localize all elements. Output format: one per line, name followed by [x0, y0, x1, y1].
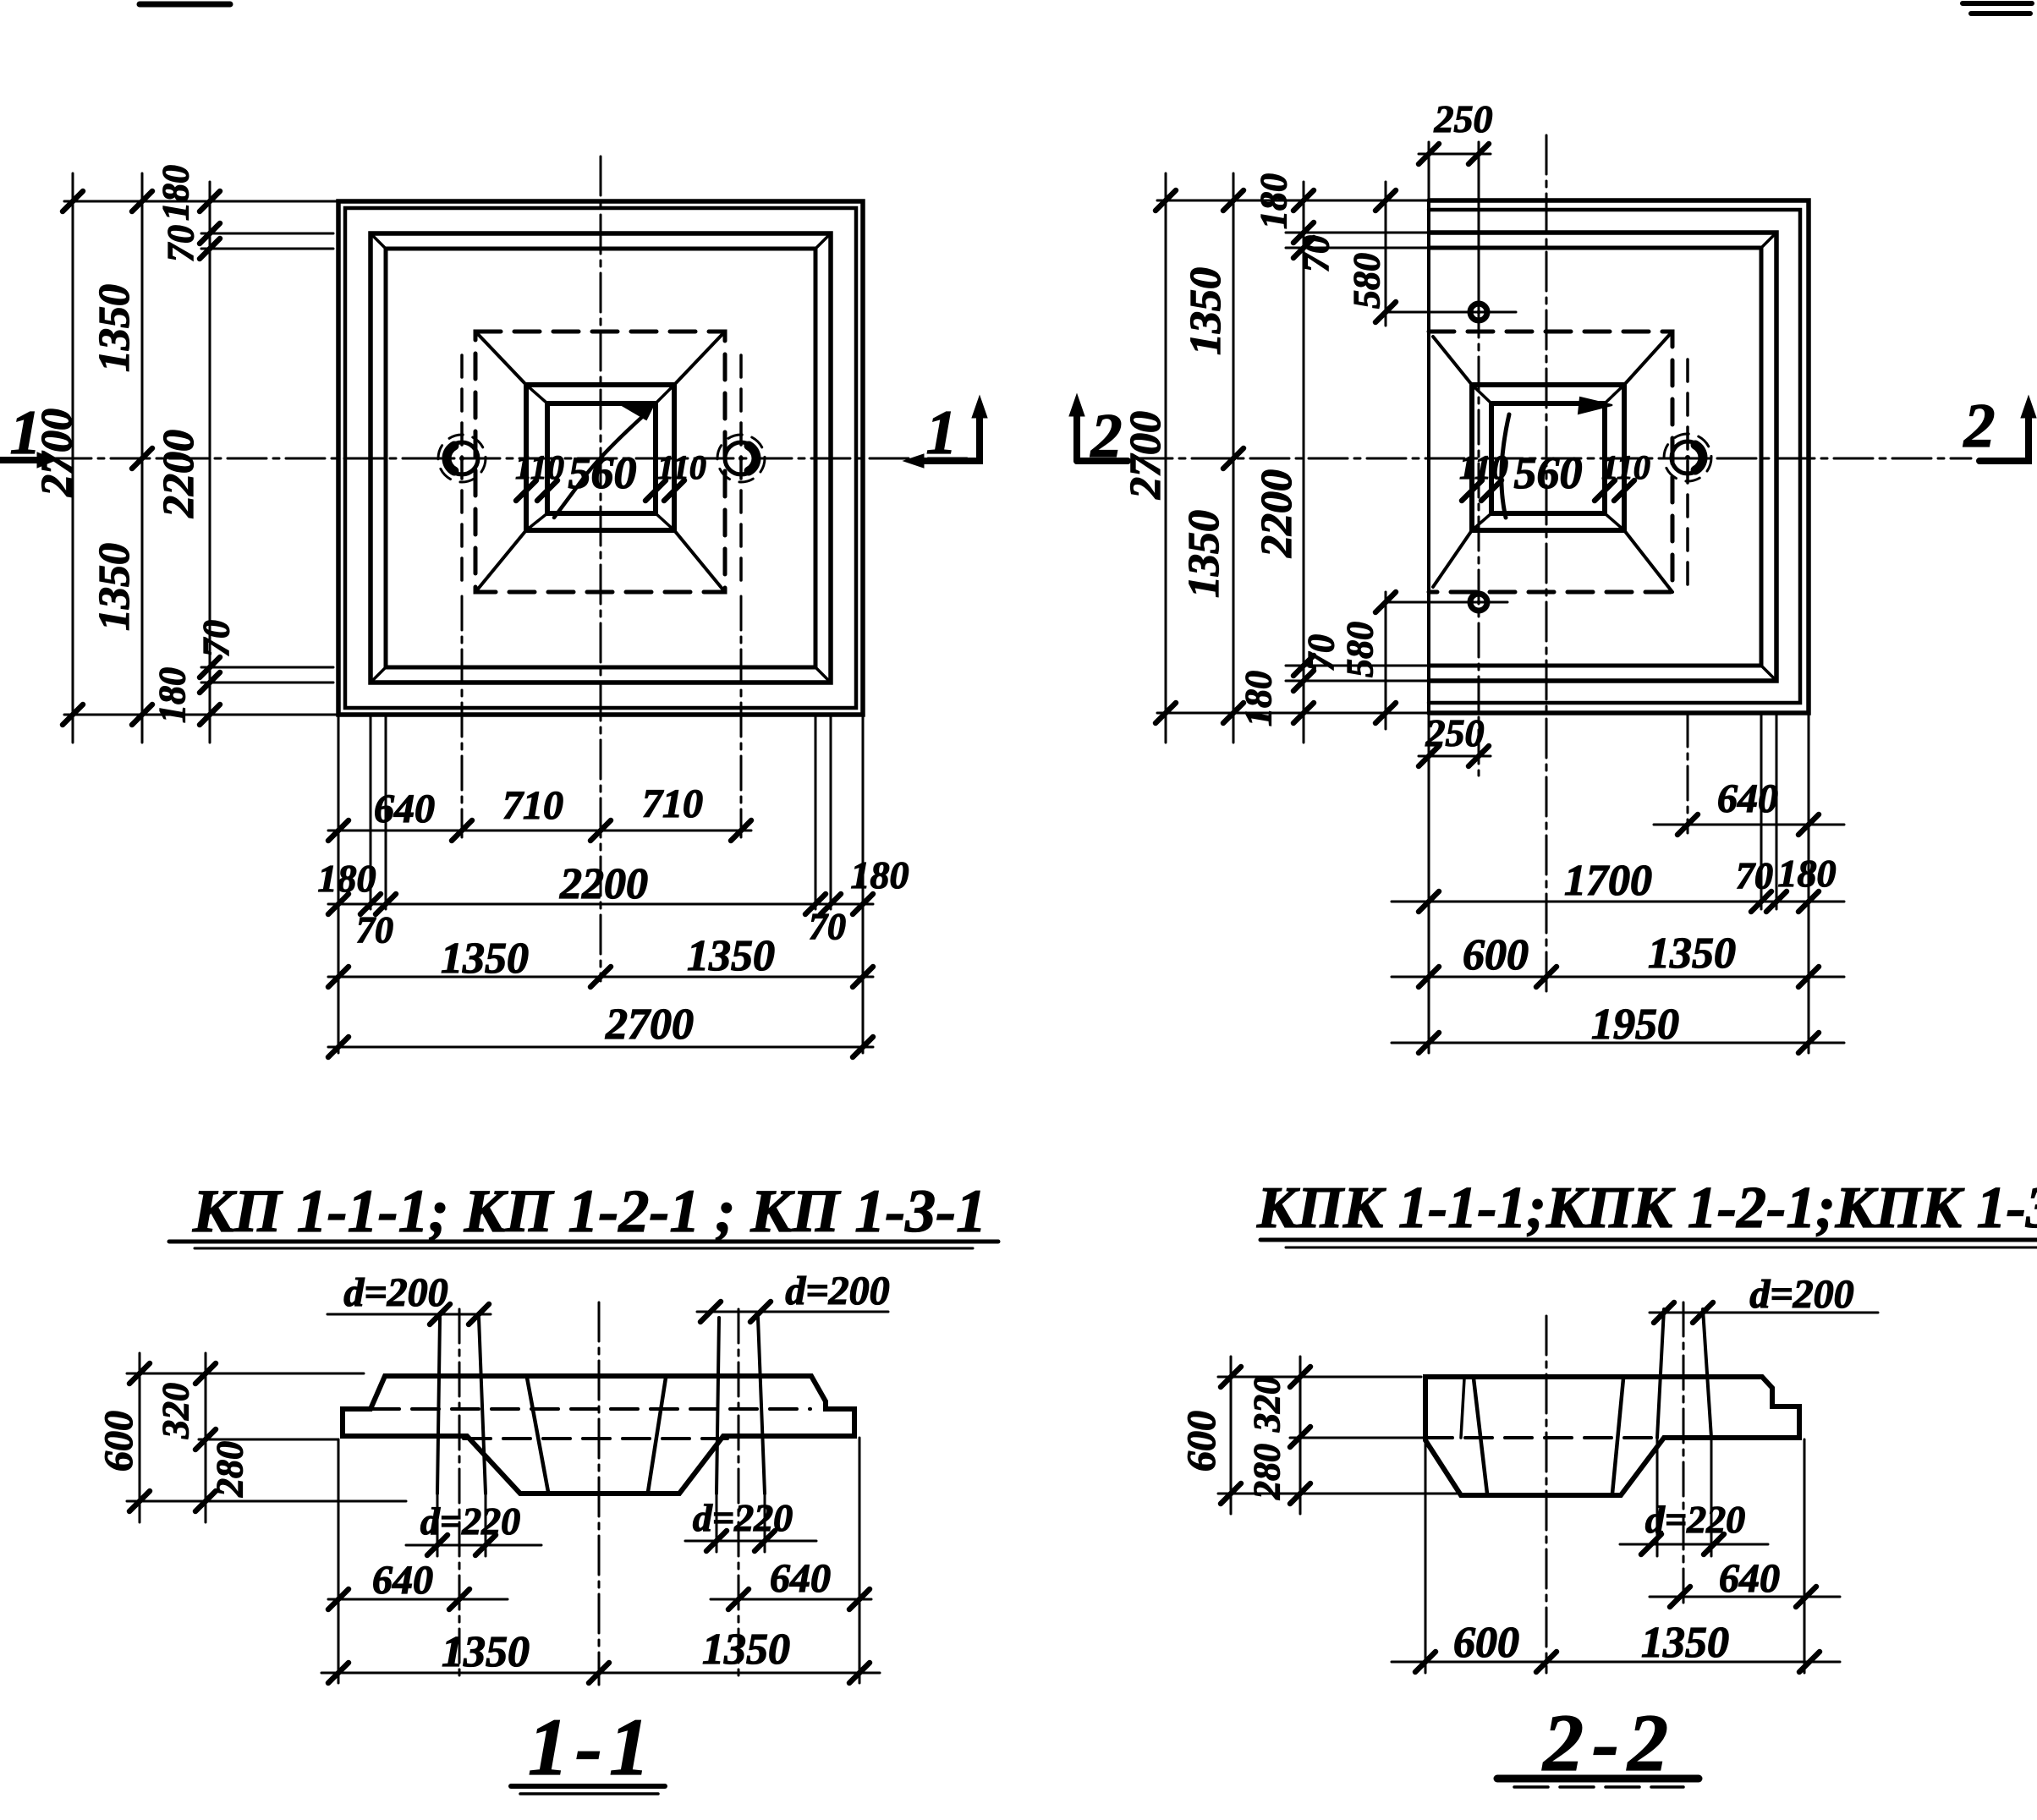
svg-text:d=200: d=200	[785, 1269, 889, 1313]
svg-text:110: 110	[1601, 448, 1650, 486]
svg-text:110: 110	[1459, 448, 1508, 486]
svg-text:d=200: d=200	[343, 1270, 447, 1315]
svg-text:640: 640	[1719, 1556, 1780, 1601]
svg-text:600: 600	[96, 1411, 141, 1472]
svg-text:180: 180	[1238, 671, 1279, 726]
svg-text:1350: 1350	[1648, 929, 1736, 978]
svg-text:1-1: 1-1	[528, 1702, 656, 1792]
svg-text:560: 560	[1514, 447, 1583, 498]
svg-text:d=200: d=200	[1749, 1272, 1853, 1317]
svg-text:110: 110	[657, 448, 706, 486]
svg-text:d=220: d=220	[420, 1499, 520, 1543]
svg-text:1350: 1350	[91, 543, 139, 631]
svg-text:180: 180	[151, 667, 193, 723]
svg-text:d=220: d=220	[1645, 1498, 1745, 1541]
svg-text:2200: 2200	[1253, 469, 1301, 558]
svg-text:d=220: d=220	[693, 1496, 793, 1539]
svg-text:70: 70	[1300, 634, 1342, 672]
svg-text:580: 580	[1346, 253, 1387, 309]
svg-text:1350: 1350	[1180, 510, 1228, 598]
svg-text:1700: 1700	[1564, 857, 1652, 905]
svg-text:2200: 2200	[155, 430, 203, 518]
svg-text:180: 180	[318, 857, 376, 900]
svg-text:640: 640	[1717, 776, 1778, 821]
svg-text:580: 580	[1339, 622, 1381, 677]
svg-text:250: 250	[1425, 711, 1485, 754]
svg-text:КПК 1-1-1;КПК 1-2-1;КПК 1-3-1: КПК 1-1-1;КПК 1-2-1;КПК 1-3-1	[1256, 1176, 2037, 1241]
svg-text:710: 710	[642, 781, 703, 826]
svg-text:70: 70	[809, 906, 846, 947]
svg-text:70: 70	[356, 909, 393, 951]
svg-text:1350: 1350	[442, 1628, 530, 1676]
svg-text:2: 2	[1963, 392, 1996, 461]
svg-text:320: 320	[155, 1383, 196, 1439]
svg-text:1950: 1950	[1591, 1000, 1679, 1049]
svg-text:640: 640	[770, 1556, 831, 1601]
svg-text:2: 2	[1090, 402, 1123, 471]
svg-text:710: 710	[502, 783, 563, 828]
svg-text:КП 1-1-1; КП 1-2-1 ; КП 1-3-1: КП 1-1-1; КП 1-2-1 ; КП 1-3-1	[192, 1177, 986, 1245]
svg-text:2700: 2700	[33, 408, 81, 497]
svg-text:280: 280	[1246, 1444, 1288, 1500]
svg-text:180: 180	[1778, 852, 1837, 895]
svg-text:110: 110	[515, 448, 564, 486]
svg-text:180: 180	[1253, 173, 1294, 229]
svg-text:180: 180	[155, 165, 196, 221]
svg-text:2700: 2700	[605, 1000, 694, 1049]
svg-text:1350: 1350	[687, 932, 775, 980]
svg-text:2700: 2700	[1122, 411, 1170, 500]
svg-text:600: 600	[1453, 1619, 1519, 1667]
svg-text:1350: 1350	[1641, 1619, 1729, 1667]
svg-text:250: 250	[1434, 97, 1493, 140]
svg-text:2-2: 2-2	[1541, 1697, 1677, 1788]
svg-text:560: 560	[568, 447, 637, 498]
svg-text:70: 70	[195, 620, 237, 657]
svg-text:600: 600	[1179, 1411, 1224, 1472]
svg-text:1350: 1350	[91, 284, 139, 372]
svg-text:1350: 1350	[1182, 267, 1230, 355]
svg-text:600: 600	[1463, 931, 1529, 979]
svg-text:70: 70	[160, 225, 201, 262]
svg-text:280: 280	[209, 1441, 250, 1498]
svg-text:180: 180	[851, 853, 909, 896]
svg-text:320: 320	[1246, 1376, 1288, 1433]
svg-text:1350: 1350	[702, 1625, 790, 1674]
svg-text:640: 640	[374, 787, 435, 831]
svg-text:1350: 1350	[441, 935, 529, 983]
svg-text:1: 1	[926, 398, 958, 468]
svg-text:70: 70	[1295, 235, 1337, 272]
svg-text:640: 640	[372, 1558, 433, 1603]
svg-text:2200: 2200	[559, 860, 648, 908]
svg-text:70: 70	[1736, 855, 1773, 896]
